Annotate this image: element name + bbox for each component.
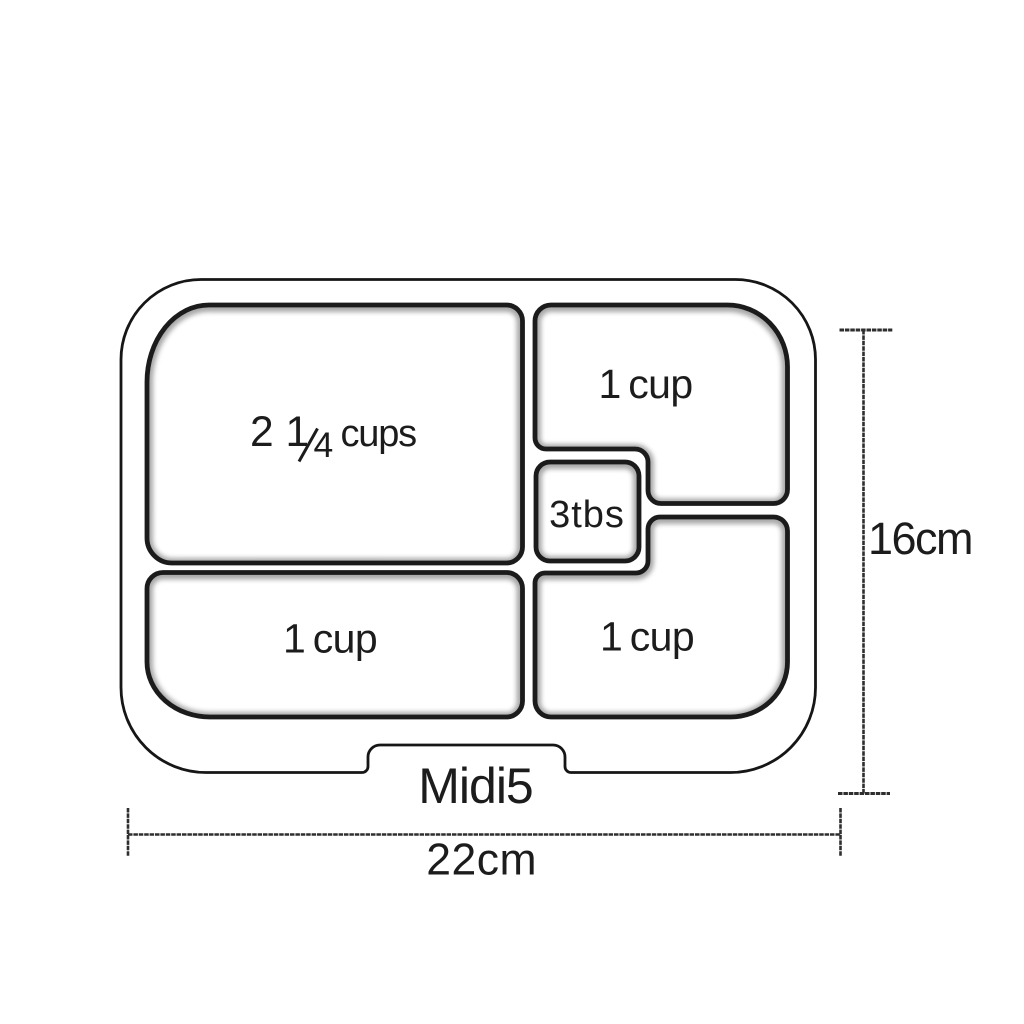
svg-text:1 cup: 1 cup [598, 361, 692, 407]
svg-text:1 cup: 1 cup [600, 614, 694, 660]
svg-text:16cm: 16cm [868, 513, 972, 564]
svg-text:3tbs: 3tbs [549, 494, 625, 536]
svg-text:22cm: 22cm [426, 836, 537, 885]
svg-text:4: 4 [314, 425, 334, 465]
svg-text:cups: cups [341, 413, 417, 455]
svg-text:Midi5: Midi5 [418, 758, 532, 814]
svg-text:1 cup: 1 cup [283, 616, 377, 662]
svg-text:2 1: 2 1 [250, 409, 309, 456]
